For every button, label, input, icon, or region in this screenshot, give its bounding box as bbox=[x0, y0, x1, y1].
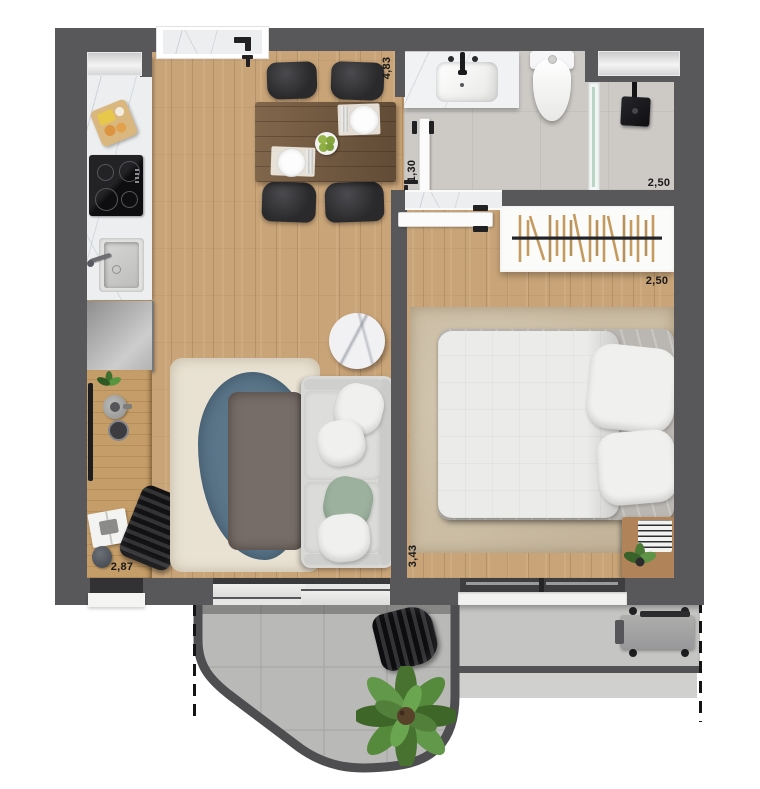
entrance-door-handle bbox=[245, 37, 251, 51]
shower-head bbox=[620, 96, 650, 126]
dimension-label-bathroom-width: 2,50 bbox=[648, 177, 671, 189]
bedroom-door-handle bbox=[473, 226, 488, 232]
cooktop-controls bbox=[135, 169, 139, 185]
dining-chair bbox=[266, 61, 317, 100]
dining-chair bbox=[324, 181, 384, 223]
desk-plant bbox=[96, 371, 122, 397]
window-mullion bbox=[539, 578, 544, 592]
desk-window-sill bbox=[88, 593, 145, 607]
book-item bbox=[99, 519, 119, 536]
dining-table bbox=[255, 102, 396, 182]
floor-plan: 4,83 1,30 2,50 2,50 3,43 2,87 bbox=[0, 0, 760, 789]
faucet-base bbox=[87, 260, 94, 267]
ac-foot bbox=[629, 649, 637, 657]
boundary-dashed-right bbox=[699, 601, 702, 722]
wall-bathroom-bottom bbox=[497, 190, 674, 206]
glass-tint bbox=[592, 87, 595, 187]
window-pane bbox=[546, 582, 618, 585]
sink-basin bbox=[104, 242, 139, 288]
wall-top-main bbox=[266, 28, 596, 51]
bath-faucet-spout bbox=[458, 70, 467, 75]
wall-top-kitchen bbox=[55, 28, 158, 52]
sliding-panel bbox=[213, 584, 305, 599]
bedroom-window bbox=[458, 578, 627, 605]
wall-top-kitchen-deep bbox=[55, 50, 87, 77]
dimension-label-bathroom-entry: 1,30 bbox=[406, 160, 418, 183]
bed-pillow bbox=[595, 428, 679, 508]
vanity-basin bbox=[436, 62, 498, 102]
nightstand-plant bbox=[624, 543, 656, 577]
shower-glass bbox=[588, 82, 600, 194]
fruit-slice bbox=[115, 121, 128, 134]
burner bbox=[95, 188, 118, 211]
cheese bbox=[97, 109, 116, 126]
coffee-table bbox=[329, 313, 385, 369]
kitchen-window bbox=[87, 52, 142, 76]
bed bbox=[438, 327, 674, 521]
toilet bbox=[528, 51, 576, 123]
fruit-bowl bbox=[315, 132, 338, 155]
ac-body bbox=[620, 615, 694, 649]
balcony-plant bbox=[356, 666, 456, 766]
sliding-panel bbox=[301, 589, 390, 605]
cutlery bbox=[341, 106, 348, 132]
dining-chair bbox=[261, 181, 316, 223]
kitchen-sink bbox=[99, 238, 144, 292]
ac-foot bbox=[629, 607, 637, 615]
nightstand bbox=[622, 517, 674, 578]
plate bbox=[349, 105, 379, 135]
faucet-handle bbox=[472, 56, 478, 62]
bedroom-window-sill bbox=[458, 592, 627, 605]
kitchen-cabinet bbox=[87, 301, 154, 372]
basin-drain bbox=[460, 83, 464, 87]
bedroom-door-handle bbox=[473, 205, 488, 211]
dimension-label-living-length: 4,83 bbox=[381, 57, 393, 80]
balcony-parapet-wall bbox=[455, 665, 700, 673]
hanger-rail bbox=[500, 206, 674, 272]
mug bbox=[108, 420, 129, 441]
coffee-maker-handle bbox=[123, 404, 132, 409]
bathroom-door-handle bbox=[412, 121, 417, 134]
ac-unit bbox=[618, 611, 694, 651]
wall-left bbox=[55, 28, 87, 605]
burner bbox=[121, 191, 138, 208]
flush-button bbox=[548, 55, 557, 64]
dimension-label-closet-width: 2,50 bbox=[646, 275, 669, 287]
toilet-bowl bbox=[533, 59, 571, 121]
window-pane bbox=[466, 582, 540, 585]
dining-chair bbox=[330, 61, 384, 101]
rug-brown bbox=[228, 392, 304, 550]
garlic bbox=[114, 106, 126, 118]
faucet-handle bbox=[448, 56, 454, 62]
ac-foot bbox=[681, 649, 689, 657]
coffee-maker-lid bbox=[110, 402, 120, 412]
dimension-label-living-width: 2,87 bbox=[111, 561, 134, 573]
walkway-band bbox=[455, 673, 697, 698]
bathroom-door-handle bbox=[429, 121, 434, 134]
boundary-dashed-left bbox=[193, 604, 196, 724]
bathroom-vanity bbox=[404, 52, 519, 108]
ac-endcap bbox=[615, 620, 624, 644]
apple bbox=[326, 143, 334, 151]
fruit-slice bbox=[103, 123, 117, 137]
cutlery bbox=[306, 149, 313, 174]
entrance-handle-inner bbox=[246, 55, 250, 67]
wardrobe bbox=[500, 206, 674, 272]
coffee-maker bbox=[103, 395, 127, 419]
wall-right bbox=[674, 28, 704, 605]
ac-top-bar bbox=[640, 611, 690, 617]
cooktop bbox=[89, 155, 143, 216]
wall-living-bedroom bbox=[391, 190, 407, 578]
vase bbox=[92, 546, 112, 568]
desk-window-frame bbox=[90, 578, 143, 593]
dimension-label-bedroom-length: 3,43 bbox=[407, 545, 419, 568]
sink-drain bbox=[112, 265, 121, 274]
tv-soundbar bbox=[88, 383, 93, 481]
bedroom-door-leaf bbox=[398, 212, 493, 227]
plate bbox=[277, 148, 306, 177]
burner bbox=[97, 164, 114, 181]
shower-head-center bbox=[632, 108, 638, 114]
bed-pillow bbox=[584, 342, 680, 436]
sliding-door bbox=[213, 578, 390, 605]
bath-faucet bbox=[460, 52, 465, 72]
wall-bathroom-left-upper bbox=[395, 28, 405, 97]
bathroom-window bbox=[598, 51, 680, 76]
